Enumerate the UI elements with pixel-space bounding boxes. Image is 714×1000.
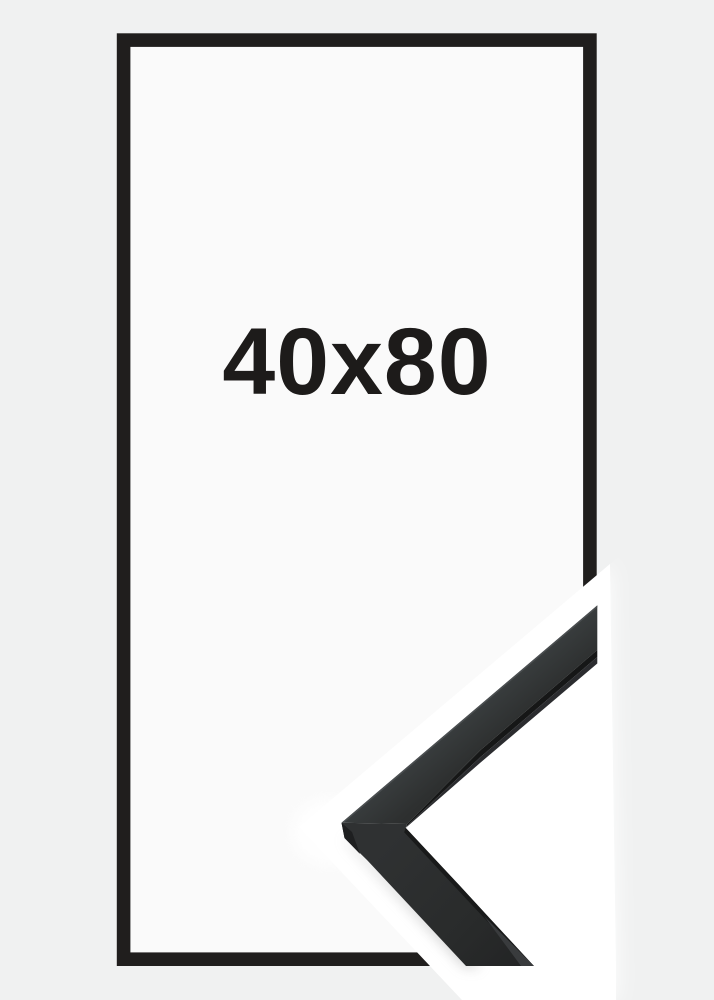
svg-text:40x80: 40x80	[222, 309, 491, 415]
